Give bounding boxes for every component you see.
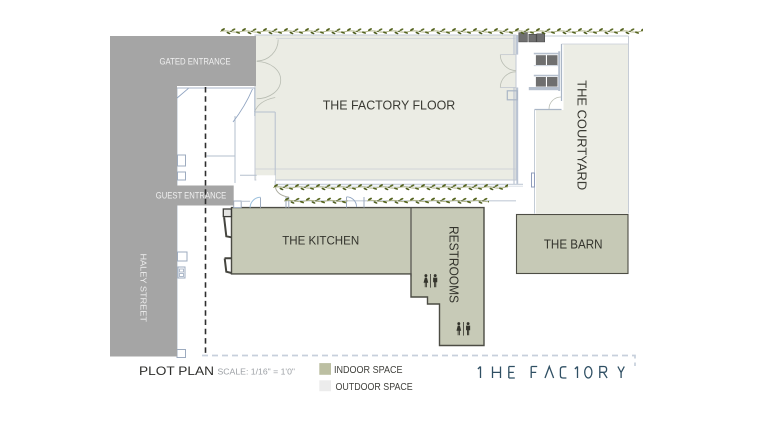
svg-text:INDOOR SPACE: INDOOR SPACE <box>334 365 403 376</box>
svg-text:THE BARN: THE BARN <box>544 236 603 251</box>
svg-text:SCALE: 1/16" = 1'0": SCALE: 1/16" = 1'0" <box>218 367 296 376</box>
svg-text:THE KITCHEN: THE KITCHEN <box>282 234 359 248</box>
svg-text:OUTDOOR SPACE: OUTDOOR SPACE <box>336 382 414 393</box>
svg-text:THE FACTORY FLOOR: THE FACTORY FLOOR <box>323 97 456 112</box>
svg-text:HALEY STREET: HALEY STREET <box>139 253 149 322</box>
svg-text:GUEST ENTRANCE: GUEST ENTRANCE <box>156 191 227 201</box>
svg-text:RESTROOMS: RESTROOMS <box>447 226 461 303</box>
svg-text:GATED ENTRANCE: GATED ENTRANCE <box>160 57 231 67</box>
svg-text:PLOT PLAN: PLOT PLAN <box>139 364 214 378</box>
svg-text:THE COURTYARD: THE COURTYARD <box>575 80 589 190</box>
